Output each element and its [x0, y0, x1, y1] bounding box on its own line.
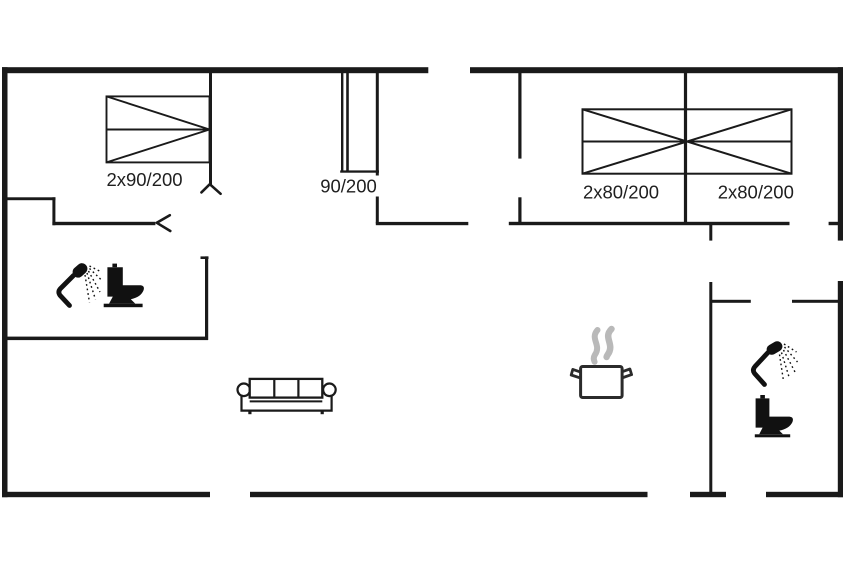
- svg-text:90/200: 90/200: [320, 176, 377, 197]
- svg-text:2x80/200: 2x80/200: [718, 182, 794, 203]
- svg-text:2x90/200: 2x90/200: [106, 169, 182, 190]
- svg-text:2x80/200: 2x80/200: [583, 182, 659, 203]
